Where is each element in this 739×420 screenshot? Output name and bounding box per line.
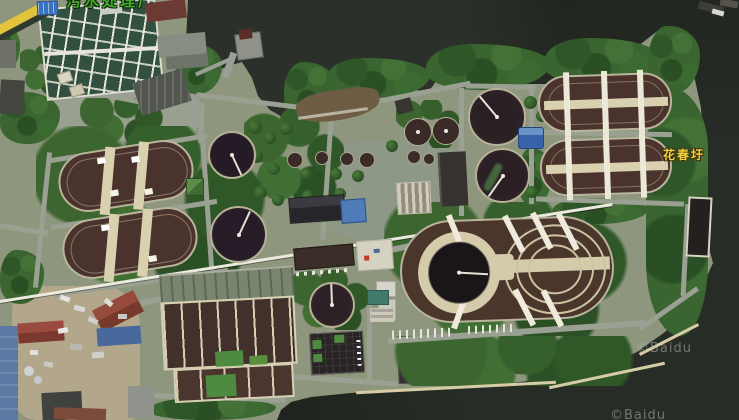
digester-tank	[432, 117, 460, 145]
small-tank	[287, 152, 303, 168]
ditch-bridge	[601, 71, 609, 135]
clarifier-tank	[309, 282, 355, 328]
green-roof-building	[186, 178, 204, 196]
ditch-block	[131, 156, 140, 163]
tank-arm	[231, 155, 242, 176]
pier-roof	[238, 28, 252, 40]
bush	[526, 186, 538, 198]
satellite-map-canvas[interactable]: 污水处理厂 花春圩 ©Baidu ©Baidu	[0, 0, 739, 420]
tank-center	[416, 130, 420, 134]
building	[128, 386, 154, 418]
lawn-cell	[206, 374, 237, 398]
bush	[272, 194, 284, 206]
ditch-block	[97, 157, 106, 164]
small-tank	[423, 153, 435, 165]
ditch-block	[144, 188, 153, 195]
building	[288, 194, 346, 224]
small-tank	[407, 150, 421, 164]
tank-center	[230, 153, 234, 157]
oxidation-ditch	[539, 136, 673, 198]
small-tank	[359, 152, 375, 168]
aeration-complex	[398, 214, 615, 324]
equipment	[374, 249, 380, 253]
digester-tank	[404, 118, 432, 146]
ditch-bridge	[603, 135, 611, 199]
small-tank	[315, 151, 329, 165]
bush	[352, 170, 364, 182]
hub-deck	[487, 254, 514, 281]
plant-name-label: 污水处理厂	[66, 0, 156, 11]
ditch-bridge	[639, 134, 647, 198]
bush	[386, 140, 398, 152]
small-tank	[340, 152, 354, 166]
clarifier-tank	[208, 131, 256, 179]
tank-arm	[238, 211, 251, 235]
tank-center	[501, 174, 505, 178]
tank-arm	[330, 284, 333, 305]
equipment	[364, 255, 369, 260]
ditch-block	[110, 189, 119, 196]
baidu-watermark: ©Baidu	[610, 408, 666, 420]
dock-channel	[685, 196, 712, 257]
swimming-pool	[37, 0, 59, 15]
pond	[367, 290, 389, 305]
clarifier-tank	[475, 148, 530, 203]
grid-walkway	[44, 46, 158, 56]
lawn-cell	[312, 340, 321, 349]
dot-row	[356, 338, 361, 366]
warehouse-blue	[0, 326, 18, 420]
lawn-cell	[334, 335, 344, 344]
tank-center	[495, 115, 499, 119]
oxidation-ditch	[537, 72, 673, 134]
building	[54, 407, 106, 420]
blue-roof-building	[340, 198, 367, 224]
ditch-block	[148, 255, 157, 262]
filter-facility	[396, 181, 432, 215]
bush	[254, 186, 267, 199]
building	[0, 79, 25, 114]
aeration-basin-grid	[160, 296, 297, 371]
building	[0, 40, 16, 68]
tank-center	[330, 303, 334, 307]
bush	[330, 168, 342, 180]
truck	[30, 350, 38, 355]
area-name-label: 花春圩	[663, 146, 705, 163]
baidu-watermark: ©Baidu	[636, 341, 692, 356]
storage-tank	[34, 376, 42, 384]
clarifier-tank	[210, 206, 267, 263]
facility-cluster	[356, 239, 394, 271]
tank-center	[444, 129, 448, 133]
bush	[280, 122, 293, 135]
blue-roof-building	[96, 325, 141, 346]
sludge-basin	[309, 331, 365, 376]
bush	[264, 132, 276, 144]
truck	[118, 314, 127, 319]
lawn-cell	[313, 354, 322, 362]
blue-tent-building	[518, 127, 544, 149]
tank-center	[457, 271, 461, 275]
truck	[92, 351, 104, 358]
bush	[268, 163, 280, 175]
aeration-basin-grid	[173, 363, 295, 403]
small-basins	[370, 308, 394, 322]
building	[438, 151, 469, 206]
bush	[300, 168, 312, 180]
truck	[70, 343, 82, 350]
bush	[248, 120, 262, 134]
tank-arm	[459, 272, 488, 276]
tree-cluster	[392, 336, 638, 386]
tank-center	[237, 233, 241, 237]
storage-tank	[24, 366, 34, 376]
ditch-bridge	[563, 72, 571, 136]
ditch-bridge	[565, 136, 573, 200]
ditch-block	[101, 224, 110, 231]
bush	[524, 96, 537, 109]
ditch-bridge	[637, 70, 645, 134]
